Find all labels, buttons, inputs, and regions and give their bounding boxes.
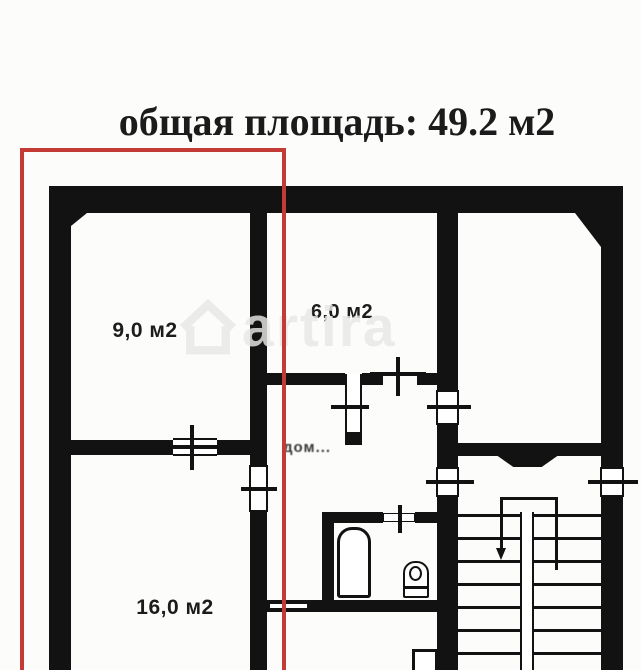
watermark: artira — [180, 298, 397, 356]
door-marker-cross — [426, 480, 474, 484]
door-marker-cross — [370, 372, 426, 376]
room-label-16: 16,0 м2 — [125, 596, 225, 620]
house-icon — [180, 298, 236, 356]
staircase-divider — [520, 512, 534, 670]
interior-wall-a-lower — [250, 512, 267, 670]
door-marker-cross — [331, 405, 369, 409]
interior-wall-d-lower — [437, 497, 458, 670]
bathroom-wall-top-right — [415, 512, 437, 523]
floor-plan-page: общая площадь: 49.2 м2 — [0, 0, 641, 670]
hall-bottom-door-opening — [270, 602, 307, 610]
door-marker-cross — [166, 445, 224, 449]
interior-wall-d-mid — [437, 425, 458, 467]
door-marker-cross — [398, 505, 402, 533]
watermark-fragment: дом... — [283, 439, 331, 456]
watermark-brand: artira — [242, 299, 397, 356]
door-marker-cross — [427, 405, 471, 409]
toilet-tank-line — [403, 586, 429, 589]
window-symbol — [290, 189, 377, 210]
cutoff-fixture — [412, 649, 438, 670]
bathroom-wall-top-left — [322, 512, 383, 523]
interior-wall-e-stub — [345, 432, 362, 445]
door-marker-cross — [396, 357, 400, 396]
total-area-title: общая площадь: 49.2 м2 — [57, 98, 617, 145]
door-marker-cross — [241, 487, 277, 491]
bathtub-icon — [337, 527, 371, 598]
stair-landing-rail — [500, 497, 557, 500]
right-room-bottom-wall — [458, 443, 601, 456]
wall-shaft-trapezoid — [492, 456, 563, 467]
outer-wall-left — [49, 186, 71, 670]
stair-direction-line — [500, 497, 503, 549]
window-symbol — [470, 189, 563, 210]
outer-wall-right — [601, 213, 623, 670]
toilet-bowl-icon — [409, 566, 422, 581]
bathroom-wall-left — [322, 523, 334, 600]
stair-direction-line — [555, 497, 558, 570]
interior-wall-d-upper — [437, 213, 458, 390]
corner-bevel-right — [575, 213, 601, 247]
corner-bevel-left — [71, 213, 87, 226]
interior-wall-c1 — [267, 373, 345, 385]
window-symbol — [90, 189, 183, 210]
door-opening-wall-e — [345, 374, 362, 432]
window-marker-cross — [588, 480, 638, 484]
